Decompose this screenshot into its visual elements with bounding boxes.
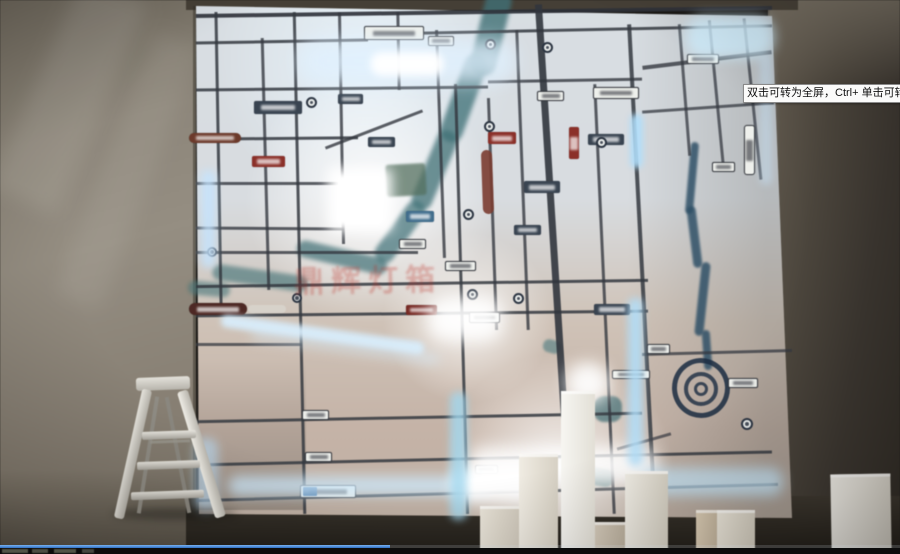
fullscreen-tooltip: 双击可转为全屏，Ctrl+ 单击可转为 [743,84,900,103]
player-text-fragment [82,549,94,553]
player-text-fragment [54,549,76,553]
player-progress-bar[interactable] [0,544,900,554]
player-bottom-strip [0,548,900,554]
player-text-fragment [32,549,48,553]
player-text-fragment [2,549,28,553]
video-frame[interactable]: 鼎辉灯箱 双击可转为全屏，Ctrl+ 单击可转为 [0,0,900,554]
video-watermark: 鼎辉灯箱 [294,255,443,302]
